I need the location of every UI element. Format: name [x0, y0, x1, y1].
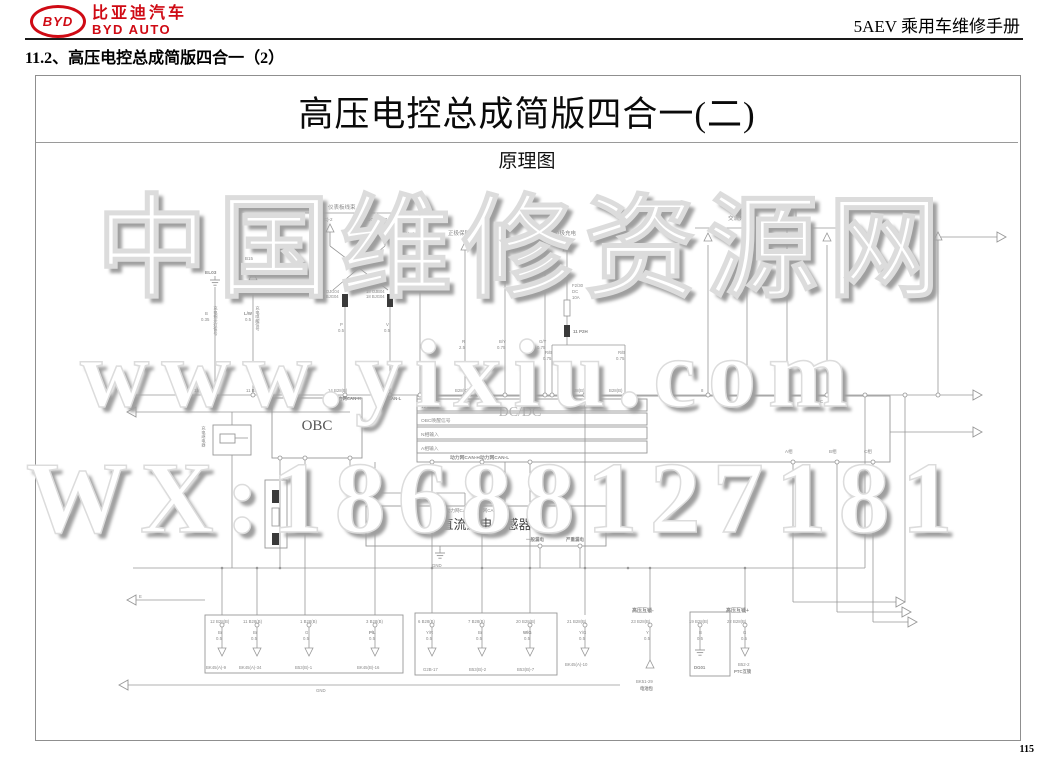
junction-dot: [256, 567, 259, 570]
schematic-label: 电池包: [640, 685, 654, 692]
schematic-label: 0.5: [216, 636, 223, 641]
schematic-label: 0.5: [303, 636, 310, 641]
schematic-label: 0.5: [476, 636, 483, 641]
junction-dot: [481, 567, 484, 570]
connector-triangle-icon: [253, 648, 261, 656]
schematic-label: BK45(B)-16: [357, 665, 380, 670]
offpage-arrow-icon: [119, 680, 128, 690]
schematic-label: Br: [253, 630, 258, 635]
component-box: [415, 613, 557, 675]
schematic-label: GND: [316, 688, 326, 693]
schematic-label: Br: [218, 630, 223, 635]
offpage-arrow-icon: [127, 595, 136, 605]
junction-dot: [627, 567, 630, 570]
schematic-label: G2B-17: [423, 667, 438, 672]
schematic-label: 0.5: [426, 636, 433, 641]
connector-triangle-icon: [371, 648, 379, 656]
watermark-line2: www.yixiu.com: [80, 318, 860, 429]
connector-triangle-icon: [305, 648, 313, 656]
watermark-line3: WX:18688127181: [26, 440, 965, 557]
offpage-arrow-icon: [896, 597, 905, 607]
schematic-label: B53(B)-7: [517, 667, 535, 672]
diagram-subtitle: 原理图: [35, 146, 1019, 173]
schematic-label: B: [699, 630, 702, 635]
schematic-label: 22 B28(B): [727, 619, 747, 624]
offpage-arrow-icon: [973, 390, 982, 400]
offpage-arrow-icon: [902, 607, 911, 617]
connector-triangle-icon: [478, 648, 486, 656]
schematic-label: B52-2: [738, 662, 750, 667]
junction-dot: [744, 567, 747, 570]
junction-dot: [221, 567, 224, 570]
junction-dot: [529, 567, 532, 570]
schematic-label: 20 B28(B): [516, 619, 536, 624]
schematic-label: 0.5: [369, 636, 376, 641]
schematic-label: 0.5: [579, 636, 586, 641]
schematic-label: N相输入: [421, 431, 439, 438]
schematic-label: DG01: [694, 665, 706, 670]
schematic-label: 0.5: [251, 636, 258, 641]
schematic-label: 高压互锁-: [632, 607, 654, 614]
schematic-label: B53(B)-1: [295, 665, 313, 670]
schematic-label: 1 B28(B): [300, 619, 318, 624]
schematic-label: 0.5: [524, 636, 531, 641]
schematic-label: P/L: [369, 630, 376, 635]
schematic-label: 23 B28(B): [631, 619, 651, 624]
schematic-label: 11 B28(B): [243, 619, 263, 624]
junction-dot: [584, 567, 587, 570]
connector-triangle-icon: [526, 648, 534, 656]
schematic-label: 7 B28(B): [468, 619, 486, 624]
schematic-label: G: [305, 630, 309, 635]
schematic-label: G: [743, 630, 747, 635]
schematic-label: 0.5: [741, 636, 748, 641]
diagram-title: 高压电控总成简版四合一(二): [35, 86, 1019, 137]
offpage-arrow-icon: [973, 427, 982, 437]
schematic-label: Y: [646, 630, 649, 635]
schematic-label: 12 B28(B): [210, 619, 230, 624]
schematic-label: W/G: [523, 630, 532, 635]
schematic-label: 21 B28(B): [567, 619, 587, 624]
connector-triangle-icon: [581, 648, 589, 656]
connector-triangle-icon: [741, 648, 749, 656]
connector-triangle-icon: [646, 660, 654, 668]
schematic-label: Y/G: [579, 630, 587, 635]
junction-dot: [649, 567, 652, 570]
schematic-label: 0.5: [697, 636, 704, 641]
schematic-label: 高压互锁+: [726, 607, 749, 614]
pin-circle: [863, 393, 867, 397]
schematic-label: 3 B28(B): [366, 619, 384, 624]
schematic-label: BK45(A)-9: [206, 665, 227, 670]
schematic-label: PTC互锁: [734, 668, 752, 675]
schematic-label: B53(B)-2: [469, 667, 487, 672]
schematic-label: BK45(A)-10: [565, 662, 588, 667]
schematic-label: Br: [478, 630, 483, 635]
pin-circle: [936, 393, 940, 397]
watermark-line1: 中国维修资源网: [96, 158, 950, 320]
schematic-label: 19 B28(B): [689, 619, 709, 624]
connector-triangle-icon: [218, 648, 226, 656]
schematic-label: 0.5: [644, 636, 651, 641]
schematic-label: BK51-29: [636, 679, 653, 684]
offpage-arrow-icon: [997, 232, 1006, 242]
schematic-label: BK45(A)-34: [239, 665, 262, 670]
connector-triangle-icon: [428, 648, 436, 656]
pin-circle: [903, 393, 907, 397]
offpage-arrow-icon: [908, 617, 917, 627]
schematic-label: GND: [432, 563, 442, 568]
schematic-label: 6 B28(B): [418, 619, 436, 624]
schematic-label: Y/R: [426, 630, 433, 635]
schematic-label: E: [139, 594, 142, 599]
junction-dot: [279, 567, 282, 570]
